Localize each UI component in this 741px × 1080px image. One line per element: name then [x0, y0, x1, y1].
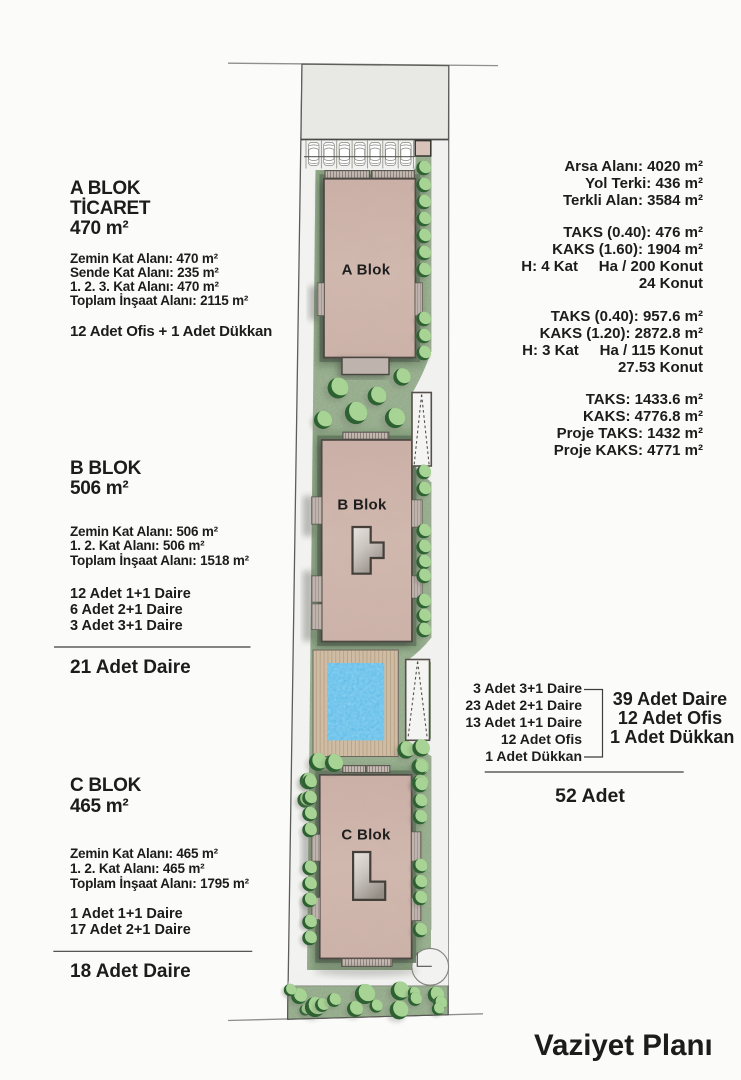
svg-text:A Blok: A Blok: [342, 262, 391, 279]
svg-text:C Blok: C Blok: [341, 827, 391, 844]
svg-text:B Blok: B Blok: [337, 497, 387, 514]
